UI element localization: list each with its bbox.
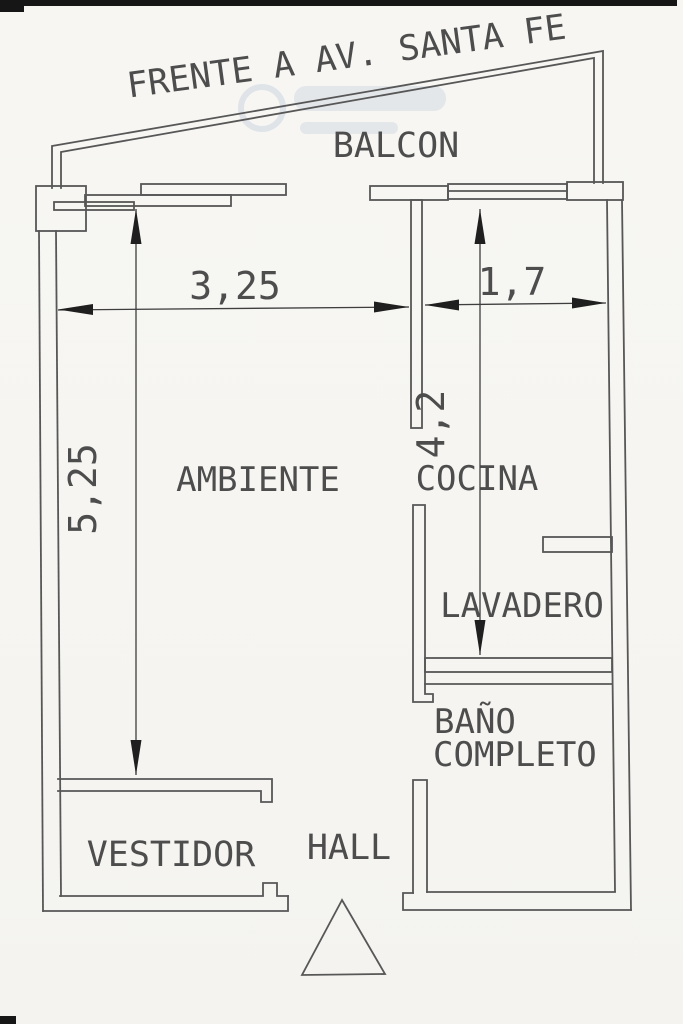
scan-edge-top-left xyxy=(0,0,24,12)
stub-wall-kitchen-laundry xyxy=(543,537,612,552)
dim-value-main-depth: 5,25 xyxy=(61,443,105,535)
scan-edge-bottom-left xyxy=(0,1016,16,1024)
wall-corner-top-right xyxy=(567,182,623,200)
dressing-top-wall xyxy=(58,779,272,802)
dim-value-kitchen-width: 1,7 xyxy=(478,260,547,304)
left-wall-inner xyxy=(56,231,61,896)
label-balcon: BALCON xyxy=(333,126,459,166)
right-wall-outer xyxy=(622,200,631,910)
label-vestidor: VESTIDOR xyxy=(87,835,257,875)
right-wall-inner xyxy=(607,200,615,891)
dressing-bottom-wall-inner xyxy=(60,883,288,896)
bottom-wall-outer-right xyxy=(403,893,631,910)
label-cocina: COCINA xyxy=(416,459,539,499)
bathroom-left-wall xyxy=(413,780,427,893)
arrowhead-up xyxy=(131,209,142,244)
label-lavadero: LAVADERO xyxy=(440,586,604,626)
floor-plan-canvas: FRENTE A AV. SANTA FE BALCON AMBIENTE CO… xyxy=(0,0,683,1024)
label-hall: HALL xyxy=(307,828,391,868)
wall-post-top-left xyxy=(36,186,86,231)
arrowhead-left xyxy=(425,300,459,311)
arrowhead-right xyxy=(572,298,606,309)
entrance-triangle xyxy=(302,900,385,975)
left-wall-outer xyxy=(39,231,43,911)
dim-value-main-width: 3,25 xyxy=(189,264,281,308)
arrowhead-down xyxy=(131,740,142,775)
label-ambiente: AMBIENTE xyxy=(176,460,340,500)
window-panel-lower xyxy=(85,195,231,206)
dim-value-kitchen-depth: 4,2 xyxy=(409,390,453,459)
dressing-bottom-wall-outer xyxy=(43,896,288,911)
scanned-floor-plan: FRENTE A AV. SANTA FE BALCON AMBIENTE CO… xyxy=(0,0,683,1024)
label-completo: COMPLETO xyxy=(433,735,597,775)
scan-edge-top xyxy=(0,0,677,6)
arrowhead-left xyxy=(58,304,93,315)
window-panel-upper xyxy=(141,184,286,195)
divider-laundry-bath xyxy=(425,658,612,672)
arrowhead-up xyxy=(475,209,486,244)
partition-cap xyxy=(370,186,448,200)
arrowhead-right xyxy=(374,302,409,313)
